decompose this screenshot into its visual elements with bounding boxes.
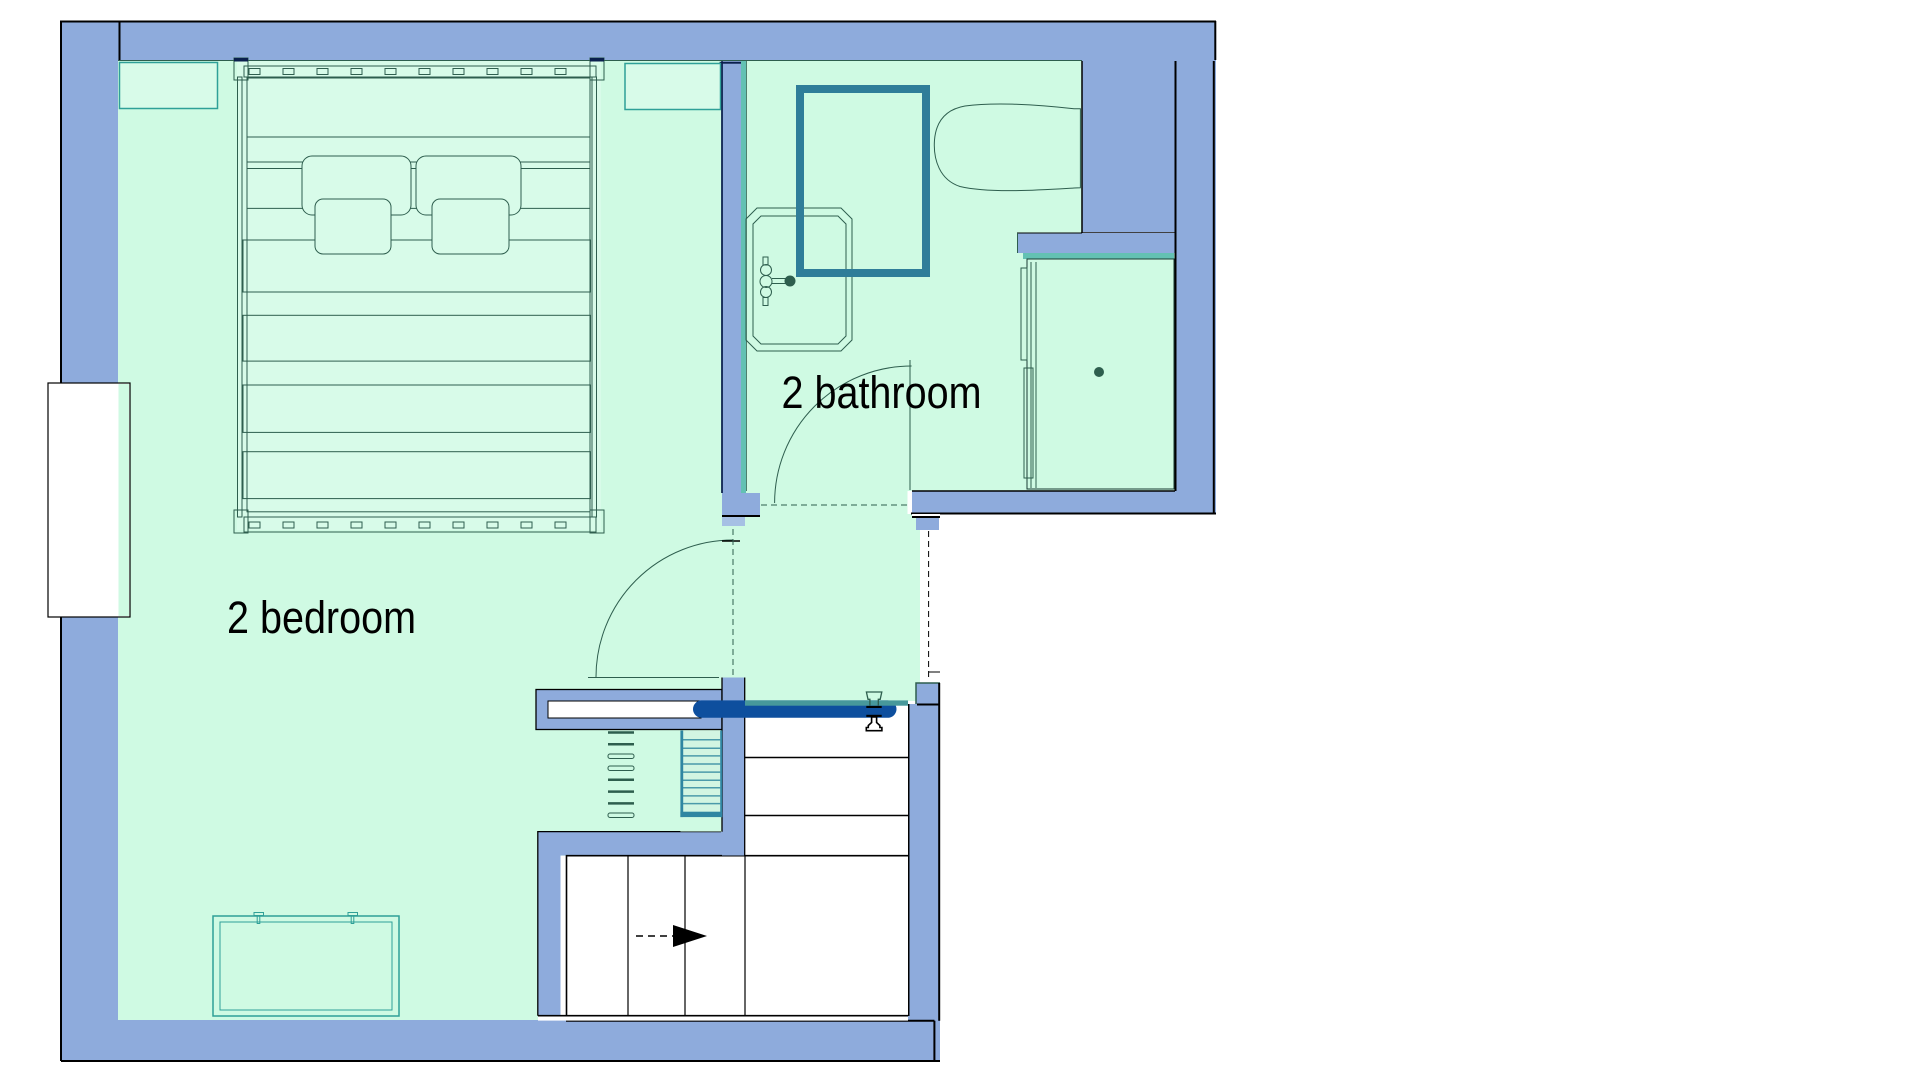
svg-text:2 bathroom: 2 bathroom bbox=[782, 367, 982, 418]
svg-text:2 bedroom: 2 bedroom bbox=[227, 592, 416, 643]
